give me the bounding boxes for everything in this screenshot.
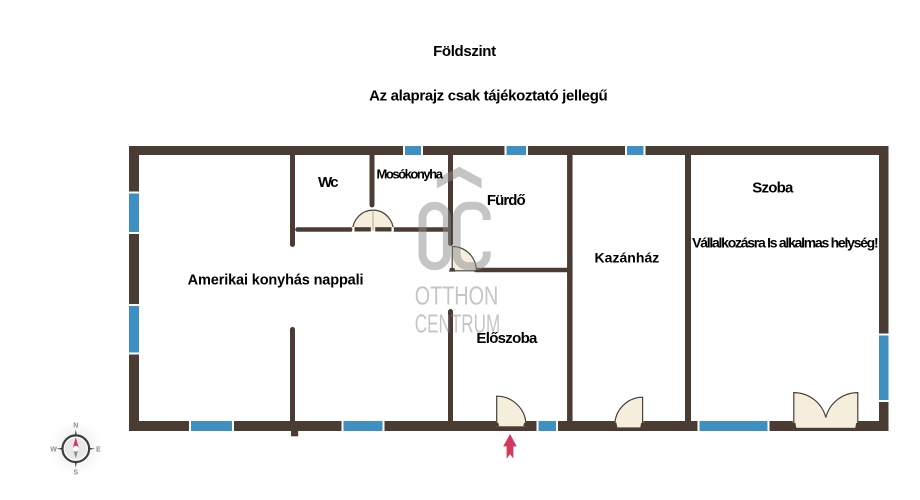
svg-text:Földszint: Földszint bbox=[433, 43, 496, 60]
svg-text:N: N bbox=[73, 423, 78, 430]
svg-text:Az alaprajz csak tájékoztató j: Az alaprajz csak tájékoztató jellegű bbox=[369, 87, 608, 104]
svg-text:Amerikai konyhás nappali: Amerikai konyhás nappali bbox=[188, 272, 364, 288]
svg-text:Vállalkozásra Is alkalmas hely: Vállalkozásra Is alkalmas helység! bbox=[692, 234, 879, 250]
svg-text:OTTHON: OTTHON bbox=[415, 281, 499, 311]
svg-text:W: W bbox=[50, 447, 57, 454]
svg-text:Wc: Wc bbox=[318, 174, 339, 191]
svg-text:Kazánház: Kazánház bbox=[595, 249, 660, 265]
svg-text:Szoba: Szoba bbox=[752, 179, 794, 196]
svg-text:Mosókonyha: Mosókonyha bbox=[376, 167, 443, 182]
svg-text:Fürdő: Fürdő bbox=[487, 192, 526, 209]
svg-text:Előszoba: Előszoba bbox=[476, 330, 538, 347]
svg-text:S: S bbox=[73, 470, 78, 477]
svg-text:E: E bbox=[96, 447, 101, 454]
